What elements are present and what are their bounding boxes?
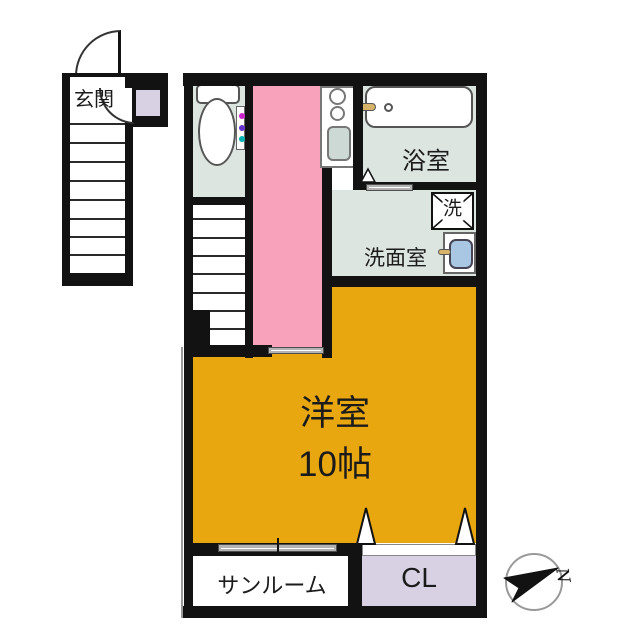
stair-tread [70,123,125,125]
stair-tread [210,328,245,330]
floor-plan: 玄関 洗 [0,0,640,640]
stair-tread [70,161,125,163]
wall [62,73,70,286]
wall [62,273,133,286]
stair-tread [70,180,125,182]
kitchen-sink-icon [327,126,351,161]
compass-needle-icon [504,568,558,602]
drain-icon [384,103,393,112]
compass-icon: N [500,548,576,614]
compass-north-label: N [551,565,574,585]
window-tick [277,538,279,555]
sliding-door [366,184,413,191]
toilet-bowl-icon [198,98,236,166]
stair-tread [192,255,245,257]
main-room-size-label: 10帖 [250,436,420,487]
corridor [253,86,322,347]
burner-icon [330,106,345,121]
closet-label: CL [362,562,476,594]
stair-tread [70,254,125,256]
sunroom-label: サンルーム [196,568,348,600]
wall [183,606,487,618]
wall [322,168,332,358]
main-room-label: 洋室 [250,385,420,436]
stair-tread [70,236,125,238]
stair-tread [192,273,245,275]
bathtub-icon [365,86,473,128]
wall [245,73,253,358]
entrance-label: 玄関 [74,83,114,112]
closet-door-track [362,544,476,556]
entrance-door-arc-icon [75,30,121,76]
stair-tread [210,310,245,312]
stair-tread [192,218,245,220]
sliding-door [268,347,324,354]
outer-edge-line [181,347,183,618]
door-triangle-icon [360,168,376,183]
stair-tread [192,237,245,239]
wall [184,197,253,205]
burner-icon [329,88,346,105]
faucet-icon [438,249,451,255]
wall [322,276,487,287]
stair-tread [192,292,245,294]
bathroom-label: 浴室 [402,141,450,176]
wall [348,543,362,618]
closet-door-triangle-icon [356,507,376,545]
washing-machine-icon: 洗 [431,192,474,230]
wall [183,73,487,86]
laundry-label: 洗 [442,200,463,221]
washbasin-sink-icon [449,239,473,269]
washroom-label: 洗面室 [364,242,427,272]
stair-tread [70,142,125,144]
wall [62,73,126,77]
wall [192,310,210,348]
closet-door-triangle-icon [455,507,475,545]
stair-tread [70,199,125,201]
stair-tread [70,218,125,220]
wall [125,125,133,286]
wall [476,73,487,618]
shoe-cabinet [136,90,160,116]
